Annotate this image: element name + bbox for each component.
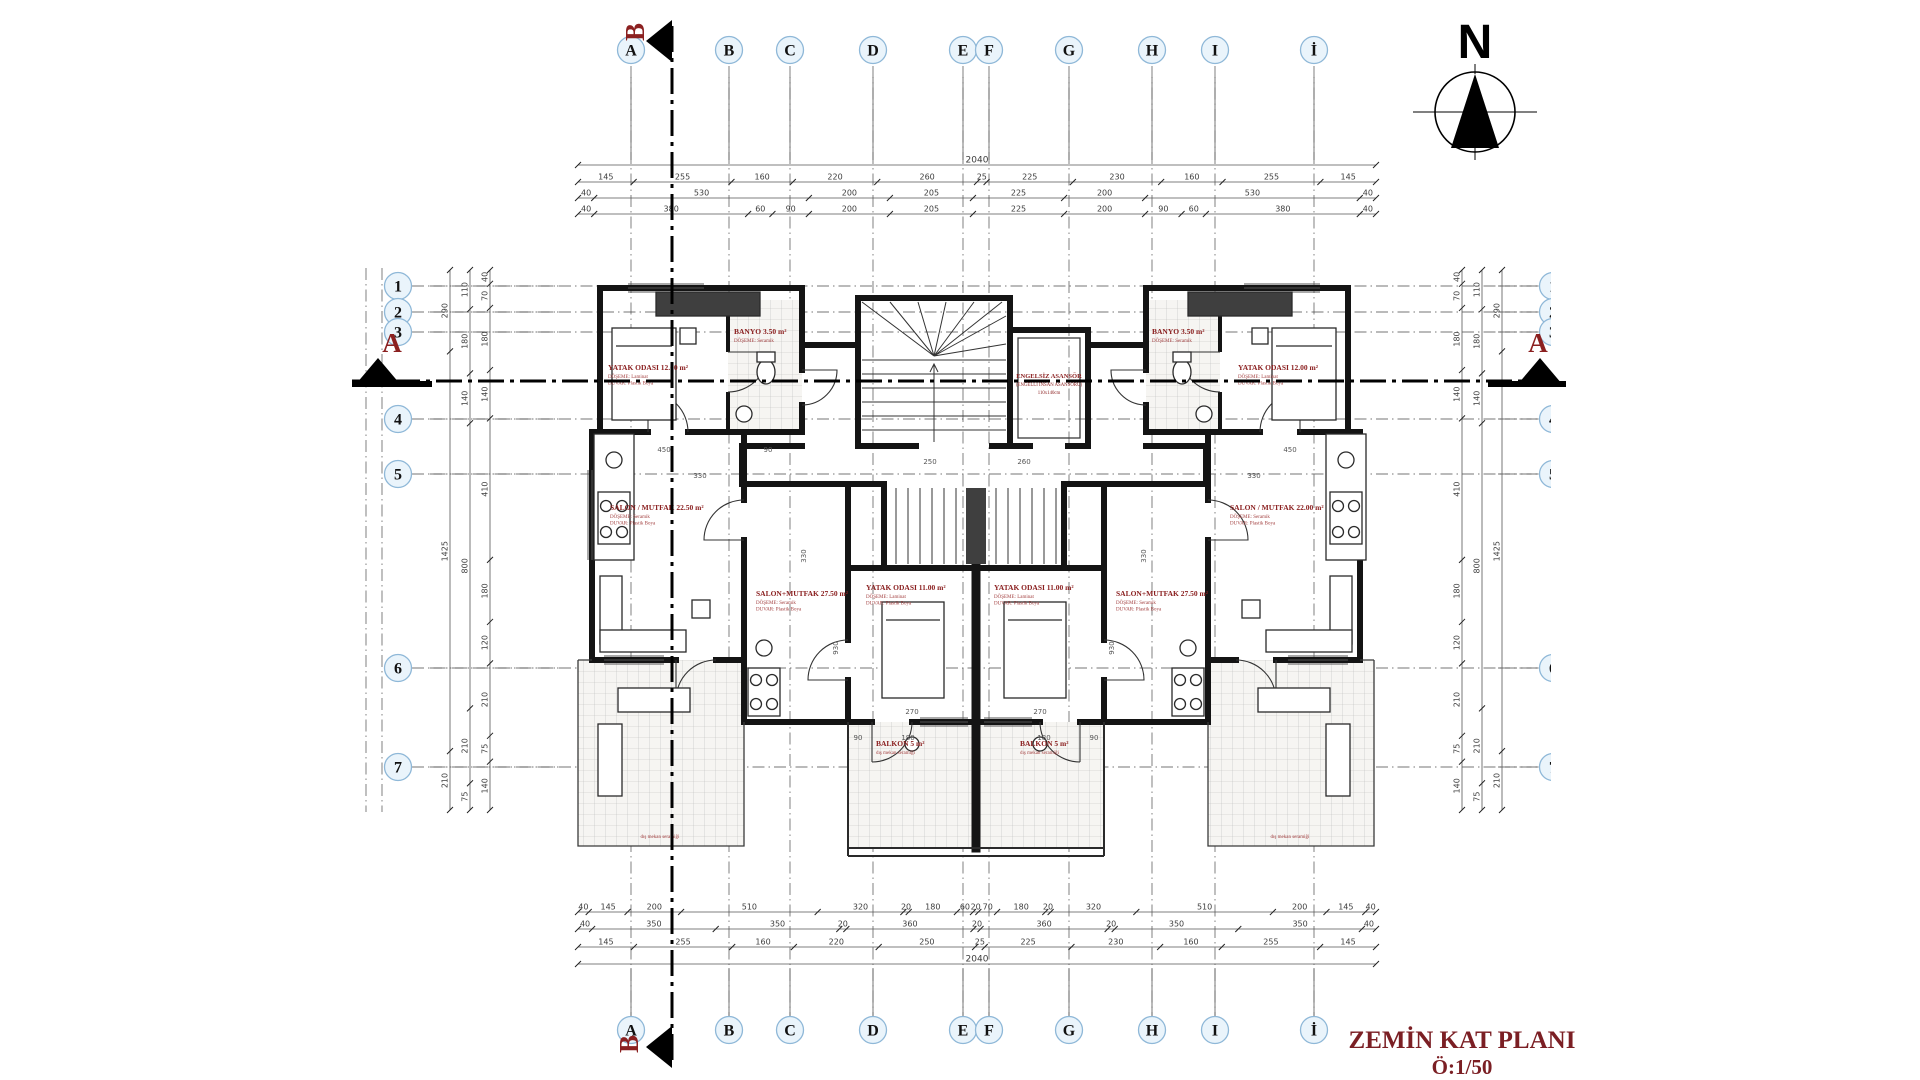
- room-title: YATAK ODASI 12.00 m²: [608, 363, 689, 372]
- room-label: SALON / MUTFAK 22.50 m²DÖŞEME: SeramikDU…: [610, 503, 704, 527]
- grid-bubble: B: [716, 1017, 743, 1044]
- room-label: SALON / MUTFAK 22.00 m²DÖŞEME: SeramikDU…: [1230, 503, 1324, 527]
- dim-label: 260: [919, 173, 934, 182]
- section-letter: B: [620, 23, 650, 41]
- dim-label: 145: [598, 173, 613, 182]
- dim-label: 160: [1183, 938, 1198, 947]
- dim-label: 140: [1453, 387, 1462, 402]
- terrace-note: dış mekan seramiği: [1271, 835, 1310, 840]
- burner: [1333, 527, 1344, 538]
- dim-label: 200: [1097, 189, 1112, 198]
- interior-dim: 450: [657, 446, 670, 454]
- section-letter: A: [382, 328, 402, 358]
- stair2-treads-right: [996, 488, 1056, 564]
- dim-label: 200: [1292, 903, 1307, 912]
- room-title: BANYO 3.50 m²: [734, 327, 787, 336]
- dim-label: 90: [1158, 205, 1168, 214]
- grid-bubble: I: [1202, 1017, 1229, 1044]
- room-finish-note: DÖŞEME: Laminat: [866, 594, 906, 600]
- grid-bubble: 6: [385, 655, 412, 682]
- burner: [601, 527, 612, 538]
- dim-label: 290: [1493, 303, 1502, 318]
- dim-label: 350: [646, 920, 661, 929]
- door-arc: [704, 500, 744, 540]
- interior-dim: 930: [1108, 641, 1116, 654]
- dim-label: 800: [1473, 558, 1482, 573]
- dim-label: 210: [1493, 773, 1502, 788]
- room-finish-note: DÖŞEME: Laminat: [994, 594, 1034, 600]
- grid-bubble-label: 5: [394, 467, 402, 484]
- grid-bubble: I: [1202, 37, 1229, 64]
- interior-dim: 330: [800, 549, 808, 562]
- sheet-title: ZEMİN KAT PLANI: [1349, 1026, 1576, 1054]
- dim-label: 20: [971, 903, 981, 912]
- dim-label: 20: [972, 920, 982, 929]
- room-finish-note: DÖŞEME: Seramik: [1230, 514, 1270, 520]
- grid-bubble-label: 5: [1549, 467, 1557, 484]
- room-title: SALON+MUTFAK 27.50 m²: [756, 589, 849, 598]
- grid-bubble: D: [860, 1017, 887, 1044]
- dim-label: 145: [1341, 173, 1356, 182]
- dim-label: 205: [924, 205, 939, 214]
- section-letter: A: [1528, 328, 1548, 358]
- grid-bubble-label: C: [784, 1023, 796, 1040]
- interior-dim: 90: [854, 734, 863, 742]
- dim-label: 110: [1473, 282, 1482, 297]
- room-label: SALON+MUTFAK 27.50 m²DÖŞEME: SeramikDUVA…: [1116, 589, 1209, 613]
- grid-bubble: 5: [1540, 461, 1567, 488]
- bed: [882, 602, 944, 698]
- grid-bubble-label: G: [1063, 43, 1076, 60]
- dim-label: 180: [481, 583, 490, 598]
- dim-label: 1425: [441, 541, 450, 561]
- grid-bubble-circle: [1540, 273, 1567, 300]
- dim-label: 40: [1364, 920, 1374, 929]
- terrace-sofa: [598, 724, 622, 796]
- elevator-label: ENGELSİZ ASANSÖR: [1016, 373, 1082, 380]
- section-flag-icon: [1518, 358, 1562, 384]
- interior-dim: 180: [901, 734, 914, 742]
- dim-label: 180: [461, 334, 470, 349]
- dim-label: 140: [481, 387, 490, 402]
- dim-label: 40: [1363, 205, 1373, 214]
- dim-label: 360: [902, 920, 917, 929]
- grid-bubble: 1: [385, 273, 412, 300]
- grid-bubble-label: B: [724, 43, 735, 60]
- interior-dim: 90: [1090, 734, 1099, 742]
- wardrobe: [1188, 292, 1292, 316]
- room-finish-note: dış mekan seramiği: [1020, 751, 1059, 756]
- grid-bubble-label: 3: [1549, 325, 1557, 342]
- dim-label: 250: [919, 938, 934, 947]
- sink: [756, 640, 772, 656]
- room-finish-note: dış mekan seramiği: [876, 751, 915, 756]
- dim-label: 145: [1340, 938, 1355, 947]
- washbasin: [736, 406, 752, 422]
- dim-label: 225: [1011, 205, 1026, 214]
- grid-bubble-circle: [1540, 406, 1567, 433]
- dim-label: 1425: [1493, 541, 1502, 561]
- grid-bubble: İ: [1301, 1017, 1328, 1044]
- door-arc: [808, 640, 848, 680]
- room-finish-note: DÖŞEME: Seramik: [1116, 600, 1156, 606]
- grid-bubble: E: [950, 37, 977, 64]
- grid-bubble-label: 4: [1549, 412, 1557, 429]
- room-finish-note: DÖŞEME: Seramik: [1152, 338, 1192, 344]
- grid-bubble-label: 6: [394, 661, 402, 678]
- dim-label: 40: [581, 189, 591, 198]
- burner: [617, 527, 628, 538]
- dim-label: 40: [1366, 903, 1376, 912]
- grid-bubble-label: E: [958, 43, 969, 60]
- dim-label: 230: [1109, 173, 1124, 182]
- burner: [1175, 675, 1186, 686]
- dim-label: 200: [842, 189, 857, 198]
- sink: [1338, 452, 1354, 468]
- coffee-table: [692, 600, 710, 618]
- floor-plan-sheet: 2040145255160220260252252301602551454053…: [0, 0, 1920, 1080]
- sofa: [1266, 630, 1352, 652]
- bed: [612, 328, 676, 420]
- bed: [1004, 602, 1066, 698]
- grid-bubble-label: İ: [1311, 41, 1317, 60]
- grid-bubble: 1: [1540, 273, 1567, 300]
- grid-bubble: 6: [1540, 655, 1567, 682]
- bed: [1272, 328, 1336, 420]
- dim-label: 145: [600, 903, 615, 912]
- interior-dim: 270: [1033, 708, 1046, 716]
- grid-bubble-label: İ: [1311, 1021, 1317, 1040]
- burner: [751, 699, 762, 710]
- burner: [1191, 699, 1202, 710]
- dim-label: 2040: [966, 156, 989, 166]
- dim-label: 160: [755, 938, 770, 947]
- grid-bubble-label: I: [1212, 43, 1218, 60]
- dim-label: 530: [1245, 189, 1260, 198]
- burner: [767, 675, 778, 686]
- burner: [751, 675, 762, 686]
- dim-label: 90: [786, 205, 796, 214]
- grid-bubble-circle: [1540, 299, 1567, 326]
- grid-bubble: 4: [385, 406, 412, 433]
- grid-bubble-label: 1: [394, 279, 402, 296]
- dim-label: 255: [675, 173, 690, 182]
- sink: [606, 452, 622, 468]
- dim-label: 40: [581, 205, 591, 214]
- dim-label: 180: [1473, 334, 1482, 349]
- dim-label: 40: [578, 903, 588, 912]
- dim-label: 120: [481, 635, 490, 650]
- grid-bubble-label: H: [1146, 1023, 1159, 1040]
- grid-bubble: 7: [385, 754, 412, 781]
- dim-label: 180: [1453, 583, 1462, 598]
- room-title: SALON+MUTFAK 27.50 m²: [1116, 589, 1209, 598]
- interior-dim: 330: [1140, 549, 1148, 562]
- dim-label: 220: [827, 173, 842, 182]
- room-finish-note: DUVAR: Plastik Boya: [1116, 608, 1162, 613]
- dim-label: 110: [461, 282, 470, 297]
- dim-label: 205: [924, 189, 939, 198]
- grid-bubble: 2: [1540, 299, 1567, 326]
- interior-dim: 180: [1037, 734, 1050, 742]
- dim-label: 225: [1022, 173, 1037, 182]
- dim-label: 40: [580, 920, 590, 929]
- dim-label: 510: [1197, 903, 1212, 912]
- grid-bubble: H: [1139, 37, 1166, 64]
- dim-label: 40: [481, 272, 490, 282]
- dim-label: 40: [1453, 272, 1462, 282]
- dim-label: 20: [1106, 920, 1116, 929]
- grid-bubble: İ: [1301, 37, 1328, 64]
- burner: [1333, 501, 1344, 512]
- door-arc: [802, 370, 837, 405]
- section-flag-icon: [356, 358, 400, 384]
- north-needle-icon: [1451, 74, 1499, 148]
- grid-bubble: C: [777, 37, 804, 64]
- grid-bubble-label: F: [984, 1023, 994, 1040]
- dim-label: 180: [1453, 331, 1462, 346]
- dim-label: 210: [441, 773, 450, 788]
- dim-label: 25: [975, 938, 985, 947]
- dim-label: 320: [1086, 903, 1101, 912]
- title-block: ZEMİN KAT PLANI Ö:1/50: [1349, 1026, 1576, 1079]
- dim-label: 180: [481, 331, 490, 346]
- terrace-sofa: [1258, 688, 1330, 712]
- grid-bubble: F: [976, 1017, 1003, 1044]
- dim-label: 60: [755, 205, 765, 214]
- dim-label: 350: [1292, 920, 1307, 929]
- dim-label: 320: [853, 903, 868, 912]
- toilet-tank: [1173, 352, 1191, 362]
- dim-label: 200: [842, 205, 857, 214]
- interior-dim: 450: [1283, 446, 1296, 454]
- north-letter: N: [1458, 16, 1493, 69]
- grid-bubble-circle: [1540, 754, 1567, 781]
- grid-bubble-label: F: [984, 43, 994, 60]
- grid-bubble: 5: [385, 461, 412, 488]
- burner: [1349, 501, 1360, 512]
- dim-label: 225: [1011, 189, 1026, 198]
- dim-label: 20: [838, 920, 848, 929]
- room-title: YATAK ODASI 11.00 m²: [866, 583, 946, 592]
- dim-label: 160: [1184, 173, 1199, 182]
- grid-bubble-label: 6: [1549, 661, 1557, 678]
- dim-label: 510: [742, 903, 757, 912]
- dim-label: 20: [901, 903, 911, 912]
- room-finish-note: DÖŞEME: Seramik: [610, 514, 650, 520]
- interior-dim: 90: [764, 446, 773, 454]
- dim-label: 200: [647, 903, 662, 912]
- dim-label: 410: [481, 481, 490, 496]
- wall-elevator: [1010, 330, 1088, 446]
- room-finish-note: DÖŞEME: Seramik: [756, 600, 796, 606]
- dim-label: 75: [1473, 792, 1482, 802]
- sink: [1180, 640, 1196, 656]
- dim-label: 210: [1473, 738, 1482, 753]
- interior-dim: 270: [905, 708, 918, 716]
- dim-label: 350: [1169, 920, 1184, 929]
- dim-label: 255: [1264, 173, 1279, 182]
- stair2-core: [966, 488, 986, 564]
- room-finish-note: DÖŞEME: Seramik: [734, 338, 774, 344]
- grid-bubble: B: [716, 37, 743, 64]
- terrace-sofa: [1326, 724, 1350, 796]
- grid-bubble: E: [950, 1017, 977, 1044]
- room-title: SALON / MUTFAK 22.00 m²: [1230, 503, 1324, 512]
- section-letter: B: [614, 1035, 644, 1053]
- grid-bubble-label: 1: [1549, 279, 1557, 296]
- dim-label: 140: [481, 778, 490, 793]
- nightstand: [680, 328, 696, 344]
- grid-bubble: G: [1056, 1017, 1083, 1044]
- dim-label: 75: [461, 792, 470, 802]
- dim-label: 210: [481, 692, 490, 707]
- washbasin: [1196, 406, 1212, 422]
- dim-label: 145: [598, 938, 613, 947]
- wall-corridor-ends: [742, 446, 1206, 484]
- terrace-note: dış mekan seramiği: [641, 835, 680, 840]
- burner: [1349, 527, 1360, 538]
- grid-bubble-label: E: [958, 1023, 969, 1040]
- burner: [1175, 699, 1186, 710]
- grid-bubble-label: D: [867, 43, 879, 60]
- room-finish-note: DÖŞEME: Laminat: [1238, 374, 1278, 380]
- dim-label: 255: [675, 938, 690, 947]
- dim-label: 140: [461, 391, 470, 406]
- dim-label: 210: [1453, 692, 1462, 707]
- grid-bubble-label: G: [1063, 1023, 1076, 1040]
- grid-bubble: 7: [1540, 754, 1567, 781]
- grid-bubble-label: C: [784, 43, 796, 60]
- grid-bubble: C: [777, 1017, 804, 1044]
- burner: [767, 699, 778, 710]
- dim-label: 140: [1473, 391, 1482, 406]
- grid-bubble-label: 7: [1549, 760, 1557, 777]
- burner: [1191, 675, 1202, 686]
- elevator-label: (ENGELLİ İNSAN ASANSÖRÜ): [1016, 382, 1082, 388]
- dim-label: 225: [1020, 938, 1035, 947]
- sheet-scale: Ö:1/50: [1432, 1055, 1493, 1079]
- grid-bubble: G: [1056, 37, 1083, 64]
- dim-label: 160: [755, 173, 770, 182]
- stair-winders: [862, 302, 1006, 356]
- grid-axis-vertical: [366, 268, 382, 812]
- grid-bubble-label: I: [1212, 1023, 1218, 1040]
- dim-label: 800: [461, 558, 470, 573]
- room-title: YATAK ODASI 11.00 m²: [994, 583, 1074, 592]
- section-flag-icon: [646, 1026, 672, 1068]
- grid-bubble-label: 7: [394, 760, 402, 777]
- dim-label: 290: [441, 303, 450, 318]
- north-arrow: N: [1413, 16, 1537, 160]
- elevator-label: 110x140cm: [1038, 391, 1061, 396]
- interior-dim: 330: [693, 472, 706, 480]
- room-finish-note: DÖŞEME: Laminat: [608, 374, 648, 380]
- dim-label: 350: [770, 920, 785, 929]
- interior-dim: 930: [832, 641, 840, 654]
- dim-label: 530: [694, 189, 709, 198]
- dim-label: 380: [1275, 205, 1290, 214]
- stair2-treads-left: [896, 488, 956, 564]
- grid-bubble-label: A: [625, 43, 637, 60]
- room-finish-note: DUVAR: Plastik Boya: [866, 602, 912, 607]
- dim-label: 180: [1014, 903, 1029, 912]
- dim-label: 200: [1097, 205, 1112, 214]
- dim-label: 25: [977, 173, 987, 182]
- dim-label: 360: [1036, 920, 1051, 929]
- toilet-tank: [757, 352, 775, 362]
- grid-bubble: 4: [1540, 406, 1567, 433]
- room-finish-note: DUVAR: Plastik Boya: [994, 602, 1040, 607]
- dim-label: 20: [1043, 903, 1053, 912]
- dim-label: 180: [925, 903, 940, 912]
- dim-label: 60: [960, 903, 970, 912]
- interior-dim: 260: [1017, 458, 1030, 466]
- grid-bubble: D: [860, 37, 887, 64]
- dim-label: 70: [983, 903, 993, 912]
- dim-label: 2040: [966, 955, 989, 965]
- dim-label: 120: [1453, 635, 1462, 650]
- dim-label: 70: [1453, 291, 1462, 301]
- elevator-cab: [1018, 338, 1080, 438]
- grid-bubble-label: B: [724, 1023, 735, 1040]
- room-title: BANYO 3.50 m²: [1152, 327, 1205, 336]
- grid-bubble-circle: [1540, 461, 1567, 488]
- interior-dim: 330: [1247, 472, 1260, 480]
- room-finish-note: DUVAR: Plastik Boya: [756, 608, 802, 613]
- room-label: SALON+MUTFAK 27.50 m²DÖŞEME: SeramikDUVA…: [756, 589, 849, 613]
- room-finish-note: DUVAR: Plastik Boya: [610, 522, 656, 527]
- dim-label: 210: [461, 738, 470, 753]
- dim-label: 75: [1453, 744, 1462, 754]
- terrace-sofa: [618, 688, 690, 712]
- door-arc: [1111, 370, 1146, 405]
- dim-label: 140: [1453, 778, 1462, 793]
- dim-label: 145: [1338, 903, 1353, 912]
- dim-label: 230: [1108, 938, 1123, 947]
- dim-label: 220: [829, 938, 844, 947]
- dim-label: 410: [1453, 481, 1462, 496]
- grid-bubble: H: [1139, 1017, 1166, 1044]
- grid-bubble-label: D: [867, 1023, 879, 1040]
- dim-label: 60: [1189, 205, 1199, 214]
- dim-label: 40: [1363, 189, 1373, 198]
- coffee-table: [1242, 600, 1260, 618]
- room-finish-note: DUVAR: Plastik Boya: [1230, 522, 1276, 527]
- floor-plan-svg: 2040145255160220260252252301602551454053…: [0, 0, 1920, 1080]
- grid-bubble-label: H: [1146, 43, 1159, 60]
- room-title: SALON / MUTFAK 22.50 m²: [610, 503, 704, 512]
- dim-label: 255: [1263, 938, 1278, 947]
- grid-bubble-circle: [1540, 655, 1567, 682]
- room-title: YATAK ODASI 12.00 m²: [1238, 363, 1319, 372]
- nightstand: [1252, 328, 1268, 344]
- interior-dim: 250: [923, 458, 936, 466]
- grid-bubble: F: [976, 37, 1003, 64]
- grid-bubble-label: 4: [394, 412, 402, 429]
- dim-label: 70: [481, 291, 490, 301]
- stairs: [862, 302, 1056, 564]
- dim-label: 75: [481, 744, 490, 754]
